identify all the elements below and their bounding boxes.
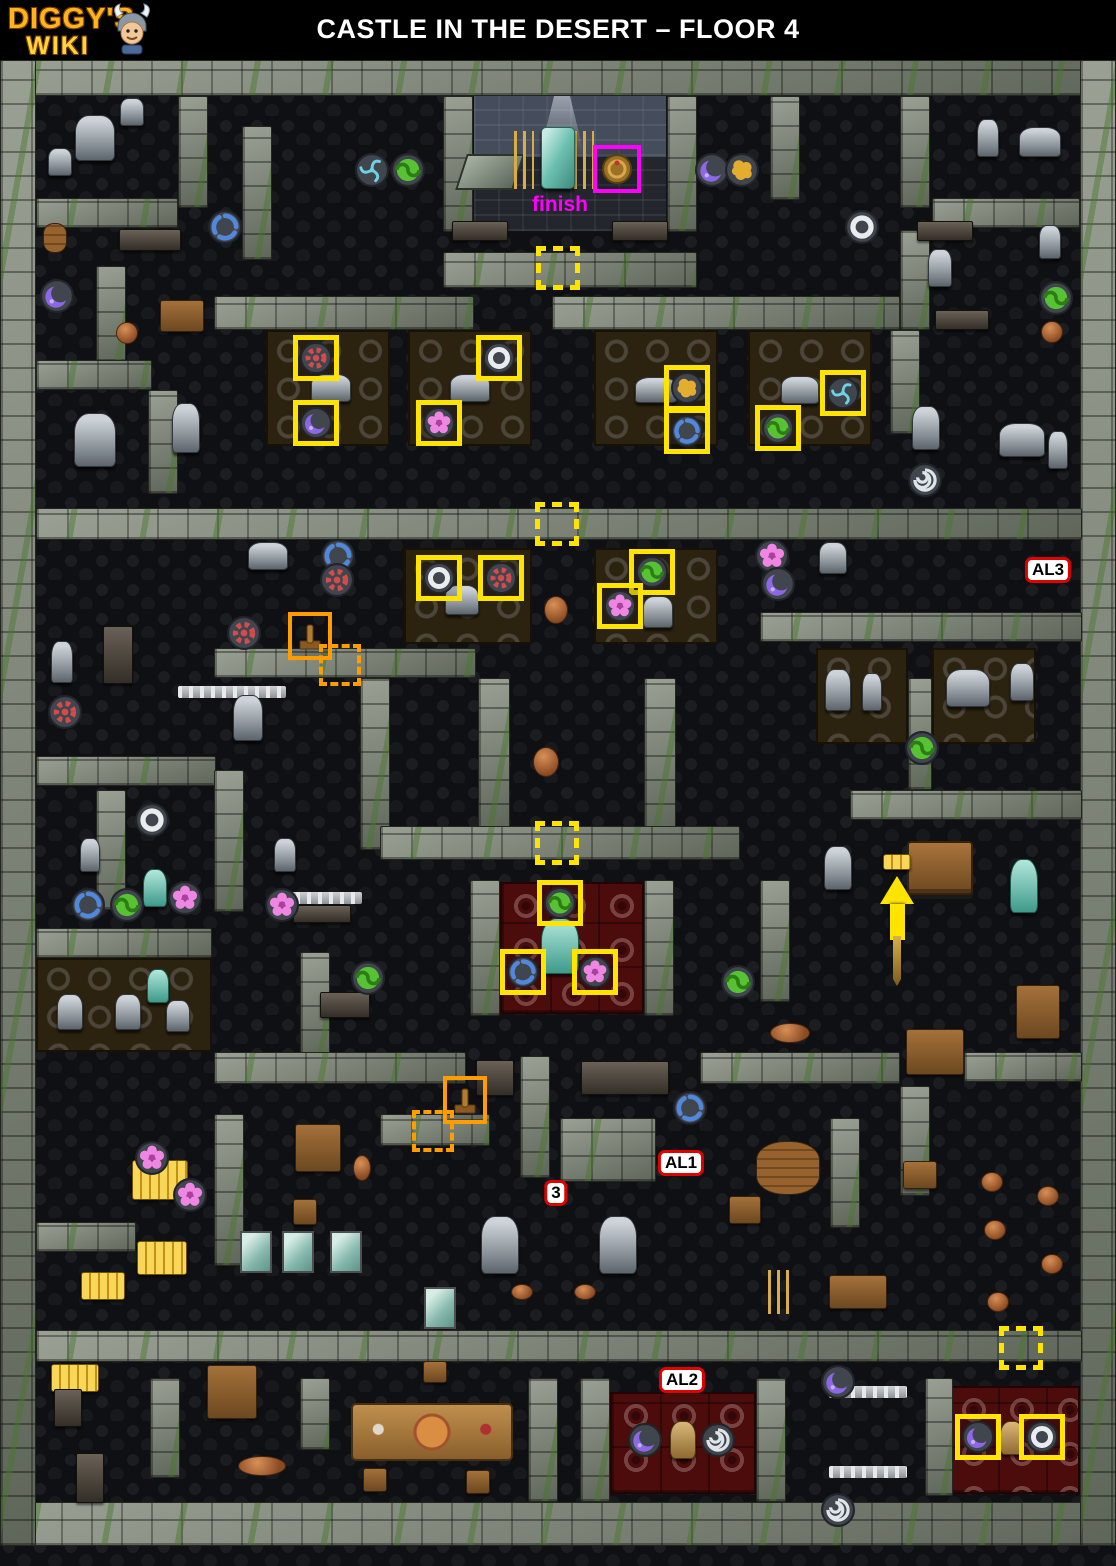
wall-segment: [470, 880, 500, 1016]
cage: [1016, 985, 1060, 1039]
hidden-passage-marker: [535, 821, 579, 865]
wall-segment: [0, 60, 1116, 96]
wall-segment: [0, 60, 36, 1546]
horse-statue: [248, 542, 288, 570]
hidden-passage-marker: [535, 502, 579, 546]
golden-lever: [883, 854, 911, 870]
ladder-rail: [178, 686, 286, 698]
wall-segment: [528, 1378, 558, 1502]
blue-swirl-symbol: [208, 210, 242, 244]
barrel-stack: [756, 1141, 820, 1195]
white-ring-symbol: [135, 803, 169, 837]
lever-target-marker: [412, 1110, 454, 1152]
stool-4: [1037, 1186, 1059, 1206]
pink-flower-symbol: [265, 888, 299, 922]
banquet-table: [351, 1403, 513, 1461]
tiki-idol-3: [166, 1000, 190, 1032]
glass-pane: [240, 1231, 272, 1273]
green-swirl-symbol: [110, 888, 144, 922]
lever-target-marker: [319, 644, 361, 686]
white-spiral-symbol: [821, 1493, 855, 1527]
crate: [729, 1196, 761, 1224]
chair-3: [363, 1468, 387, 1492]
map-title: CASTLE IN THE DESERT – FLOOR 4: [0, 14, 1116, 45]
wall-segment: [36, 756, 216, 786]
hermes-statue: [51, 641, 73, 683]
highlight-box-green-swirl: [755, 405, 801, 451]
green-swirl-symbol: [905, 731, 939, 765]
wall-segment: [964, 1052, 1082, 1082]
white-spiral-symbol: [908, 463, 942, 497]
highlight-box-blue-swirl: [500, 949, 546, 995]
camel-figure: [999, 423, 1045, 457]
ferret-statue: [977, 119, 999, 157]
snake-statue: [862, 673, 882, 711]
map-label-al3: AL3: [1025, 557, 1071, 583]
chair: [293, 1199, 317, 1225]
wall-segment: [770, 96, 800, 200]
highlight-box-purple-crescent: [955, 1414, 1001, 1460]
bow-rack: [76, 1453, 104, 1503]
mask-figure: [274, 838, 296, 872]
bone-rack: [320, 992, 370, 1018]
wall-segment: [300, 1378, 330, 1450]
bowl: [511, 1284, 533, 1300]
blue-swirl-symbol: [673, 1091, 707, 1125]
wall-segment: [900, 230, 930, 330]
wall-segment: [214, 1052, 466, 1084]
gold-idol: [670, 1421, 696, 1459]
highlight-box-purple-crescent: [293, 400, 339, 446]
red-gear-symbol: [320, 563, 354, 597]
wall-segment: [178, 96, 208, 208]
monkey-statue: [75, 115, 115, 161]
tiki-idol-2: [115, 994, 141, 1030]
weapon-rack-2: [612, 221, 668, 241]
dragon-statue: [643, 596, 673, 628]
chair-2: [423, 1361, 447, 1383]
wall-segment: [36, 1222, 136, 1252]
map-label-al2: AL2: [659, 1367, 705, 1393]
glass-pane-3: [330, 1231, 362, 1273]
finish-label: finish: [532, 193, 588, 217]
crates: [829, 1275, 887, 1309]
highlight-box-cyan-triskelion: [820, 370, 866, 416]
wall-segment: [830, 1118, 860, 1228]
wall-segment: [756, 1378, 786, 1502]
wall-segment: [925, 1378, 953, 1496]
highlight-box-pink-flower: [572, 949, 618, 995]
cat-statue: [1039, 225, 1061, 259]
green-swirl-symbol: [721, 965, 755, 999]
ghost-statue: [481, 1216, 519, 1274]
gold-bars: [51, 1364, 99, 1392]
candelabra-3: [768, 1270, 792, 1314]
bird-statue: [819, 542, 847, 574]
ghost-statue-2: [599, 1216, 637, 1274]
cabinet: [160, 300, 204, 332]
wall-segment: [36, 360, 152, 390]
green-swirl-symbol: [351, 961, 385, 995]
stool-6: [1041, 1254, 1063, 1274]
highlight-box-green-swirl: [537, 880, 583, 926]
candelabra: [514, 131, 534, 189]
wall-segment: [242, 126, 272, 260]
cupboard: [207, 1365, 257, 1419]
stool: [116, 322, 138, 344]
mummy-figure: [1048, 431, 1068, 469]
star-statue: [48, 148, 72, 176]
white-spiral-symbol: [701, 1423, 735, 1457]
purple-crescent-symbol: [695, 153, 729, 187]
floor-map: finishAL3AL13AL2: [0, 0, 1116, 1566]
wall-segment: [214, 296, 474, 330]
wall-segment: [36, 1330, 1082, 1362]
wall-segment: [760, 612, 1082, 642]
armor-stand: [824, 846, 852, 890]
highlight-box-pink-flower: [416, 400, 462, 446]
highlight-box-white-ring: [1019, 1414, 1065, 1460]
sphinx-bust: [1010, 663, 1034, 701]
cyan-triskelion-symbol: [355, 153, 389, 187]
highlight-box-white-ring: [476, 335, 522, 381]
skeleton-table: [581, 1061, 669, 1095]
highlight-box-gold-splat: [664, 365, 710, 411]
pink-flower-symbol: [135, 1141, 169, 1175]
gold-stack-2: [137, 1241, 187, 1275]
wall-segment: [36, 928, 212, 958]
obelisk: [541, 127, 575, 189]
stool-3: [981, 1172, 1003, 1192]
camel-statue: [946, 669, 990, 707]
stool-7: [987, 1292, 1009, 1312]
stool-2: [1041, 321, 1063, 343]
hidden-passage-marker: [999, 1326, 1043, 1370]
lamb-statue: [1019, 127, 1061, 157]
weapon-rack: [452, 221, 508, 241]
teal-bird: [147, 969, 169, 1003]
squirrel-statue: [781, 376, 819, 404]
wall-segment: [478, 678, 510, 830]
gold-stack-3: [81, 1272, 125, 1300]
red-gear-symbol: [48, 695, 82, 729]
spear-rack: [103, 626, 133, 684]
gold-splat-symbol: [725, 153, 759, 187]
page-header: DIGGY'S WIKI CASTLE IN THE DESERT – FLOO…: [0, 0, 1116, 60]
wall-segment: [150, 1378, 180, 1478]
wall-segment: [760, 880, 790, 1002]
torture-rack: [119, 229, 181, 251]
spear-row: [293, 905, 351, 923]
amphora: [353, 1155, 371, 1181]
knight-statue: [233, 695, 263, 741]
wall-segment: [700, 1052, 900, 1084]
wall-segment: [850, 790, 1082, 820]
purple-crescent-symbol: [40, 279, 74, 313]
weapon-pile: [54, 1389, 82, 1427]
shelf-unit: [295, 1124, 341, 1172]
wall-segment: [214, 770, 244, 912]
hanging-skeleton: [928, 249, 952, 287]
map-label-3: 3: [544, 1180, 567, 1206]
blue-swirl-symbol: [71, 888, 105, 922]
crate-cart: [906, 1029, 964, 1075]
highlight-box-blue-swirl: [664, 408, 710, 454]
wall-segment: [560, 1118, 656, 1182]
purple-crescent-symbol: [628, 1423, 662, 1457]
wall-segment: [96, 266, 126, 362]
bowl-2: [574, 1284, 596, 1300]
barrel-cart: [907, 841, 973, 895]
fruit-stand: [770, 1023, 810, 1043]
side-table: [903, 1161, 937, 1189]
hidden-passage-marker: [536, 246, 580, 290]
purple-crescent-symbol: [761, 567, 795, 601]
wall-segment: [900, 96, 930, 208]
map-label-al1: AL1: [658, 1150, 704, 1176]
pottery: [238, 1456, 286, 1476]
wall-segment: [644, 678, 676, 830]
glass-pane-4: [424, 1287, 456, 1329]
chair-4: [466, 1470, 490, 1494]
robed-figure: [80, 838, 100, 872]
mummy-case: [1010, 859, 1038, 913]
idol-statue: [120, 98, 144, 126]
anubis-statue: [172, 403, 200, 453]
red-gear-symbol: [227, 616, 261, 650]
highlight-box-red-gear: [293, 335, 339, 381]
purple-crescent-symbol: [821, 1365, 855, 1399]
pink-flower-symbol: [173, 1178, 207, 1212]
torture-rack-2: [917, 221, 973, 241]
ibis-statue: [825, 669, 851, 711]
tiki-idol: [57, 994, 83, 1030]
brazier: [544, 596, 568, 624]
arrow-head: [880, 876, 914, 904]
wall-segment: [667, 96, 697, 232]
brazier-2: [533, 747, 559, 777]
wall-segment: [520, 1056, 550, 1178]
wall-segment: [1080, 60, 1116, 1546]
highlight-box-white-ring: [416, 555, 462, 601]
green-swirl-symbol: [391, 153, 425, 187]
balustrade-2: [829, 1466, 907, 1478]
highlight-box-pink-flower: [597, 583, 643, 629]
stool-5: [984, 1220, 1006, 1240]
green-swirl-symbol: [1039, 281, 1073, 315]
candelabra-2: [574, 131, 594, 189]
barrel: [43, 223, 67, 253]
bone-pile: [935, 310, 989, 330]
wall-segment: [552, 296, 900, 330]
arrow-shaft: [893, 936, 901, 986]
wall-segment: [360, 678, 390, 850]
heron-statue: [143, 869, 167, 907]
finish-highlight-box: [593, 145, 641, 193]
pink-flower-symbol: [168, 881, 202, 915]
wiki-map-page: finishAL3AL13AL2 DIGGY'S WIKI CASTLE IN …: [0, 0, 1116, 1566]
white-ring-symbol: [845, 210, 879, 244]
up-arrow-marker: [880, 876, 914, 986]
highlight-box-red-gear: [478, 555, 524, 601]
wall-segment: [580, 1378, 610, 1502]
wall-segment: [0, 1502, 1116, 1546]
glass-pane-2: [282, 1231, 314, 1273]
arrow-stem: [890, 904, 905, 940]
wall-segment: [644, 880, 674, 1016]
pharaoh-bust: [912, 406, 940, 450]
gargoyle-bust: [74, 413, 116, 467]
